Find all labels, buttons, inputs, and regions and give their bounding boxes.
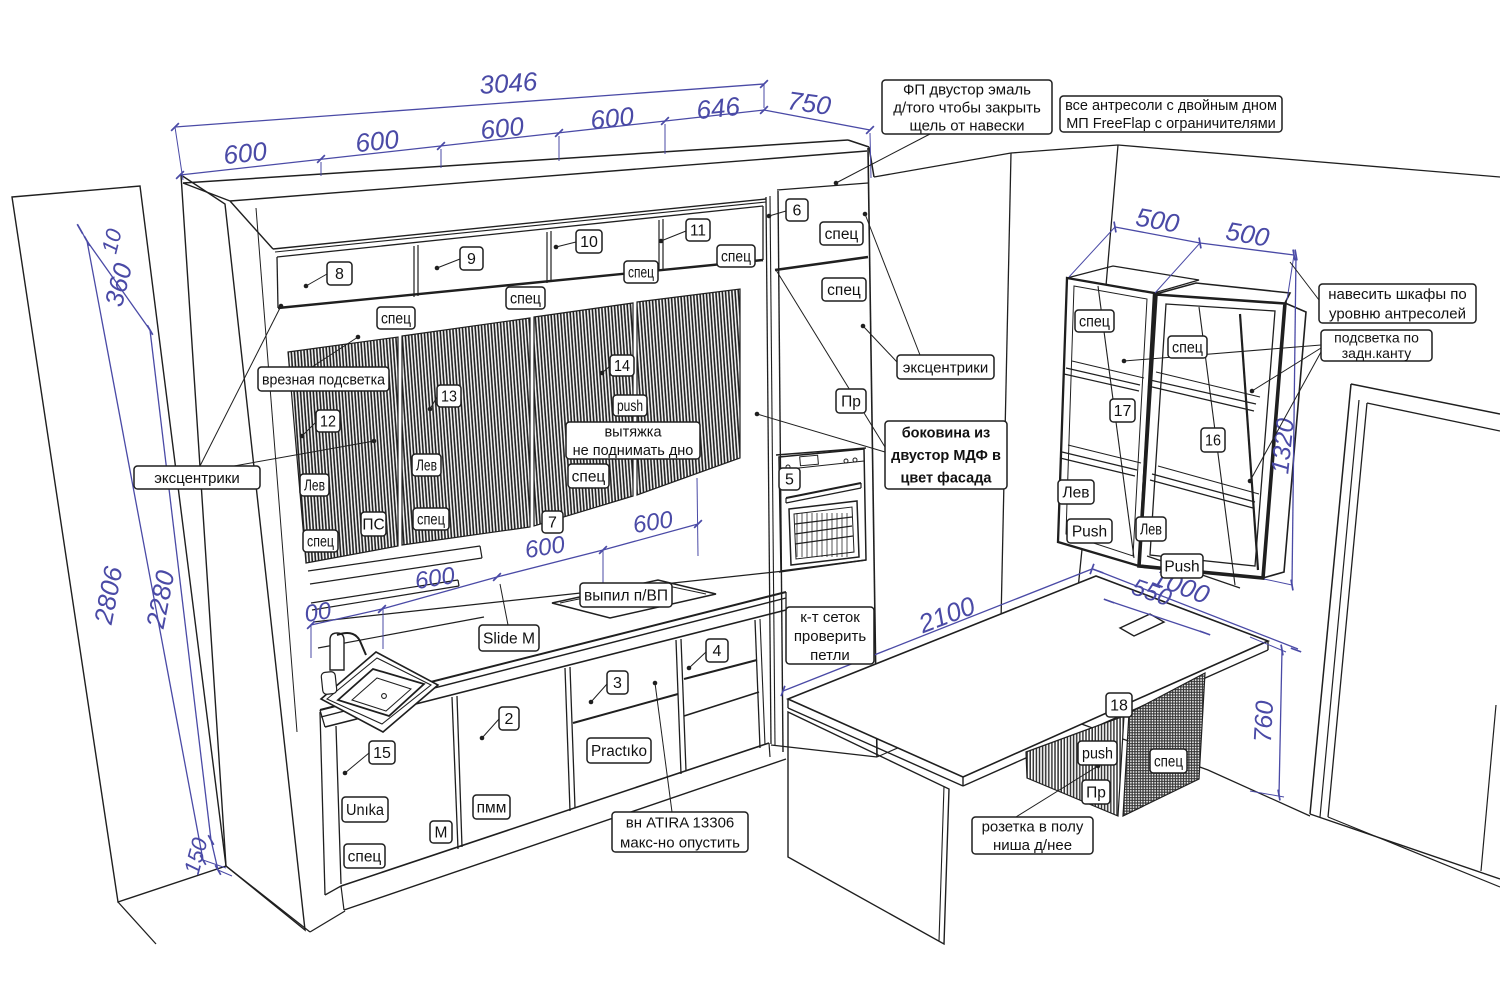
svg-text:Push: Push: [1164, 558, 1199, 575]
svg-text:боковина из: боковина из: [902, 425, 991, 441]
svg-text:навесить шкафы по: навесить шкафы по: [1328, 286, 1467, 303]
svg-text:15: 15: [373, 745, 391, 762]
svg-text:9: 9: [467, 251, 476, 268]
svg-text:3: 3: [613, 675, 622, 692]
svg-text:3046: 3046: [478, 66, 538, 100]
svg-text:646: 646: [695, 91, 742, 125]
svg-text:не поднимать дно: не поднимать дно: [573, 443, 694, 459]
svg-text:спец: спец: [381, 310, 411, 327]
svg-text:750: 750: [786, 85, 834, 121]
svg-text:760: 760: [1249, 700, 1279, 743]
svg-text:спец: спец: [628, 264, 654, 281]
svg-text:Лев: Лев: [416, 457, 437, 474]
svg-text:ниша д/нее: ниша д/нее: [993, 837, 1072, 854]
svg-text:11: 11: [690, 223, 706, 240]
svg-text:Push: Push: [1072, 523, 1107, 540]
svg-text:00: 00: [303, 597, 334, 628]
svg-text:спец: спец: [417, 511, 445, 528]
svg-text:все антресоли с двойным дном: все антресоли с двойным дном: [1065, 98, 1277, 114]
svg-text:уровню антресолей: уровню антресолей: [1329, 306, 1466, 323]
svg-text:пмм: пмм: [477, 799, 507, 816]
svg-text:эксцентрики: эксцентрики: [903, 359, 988, 376]
svg-text:5: 5: [785, 472, 794, 489]
svg-text:подсветка по: подсветка по: [1334, 330, 1419, 346]
svg-text:петли: петли: [810, 647, 850, 664]
svg-text:розетка в полу: розетка в полу: [982, 819, 1084, 836]
svg-text:Пр: Пр: [841, 393, 861, 410]
svg-text:push: push: [617, 398, 643, 415]
svg-text:600: 600: [589, 101, 636, 135]
svg-text:8: 8: [335, 266, 344, 283]
svg-text:Unıka: Unıka: [346, 802, 384, 819]
svg-text:4: 4: [713, 643, 722, 660]
svg-text:к-т сеток: к-т сеток: [800, 609, 860, 626]
svg-text:7: 7: [548, 515, 557, 532]
svg-text:12: 12: [320, 414, 336, 431]
svg-text:10: 10: [580, 234, 598, 251]
svg-text:6: 6: [793, 203, 802, 220]
svg-text:ПС: ПС: [362, 516, 384, 533]
svg-text:600: 600: [479, 111, 526, 145]
svg-text:600: 600: [354, 124, 401, 158]
svg-text:двустор МДФ в: двустор МДФ в: [891, 448, 1001, 464]
svg-text:спец: спец: [827, 282, 861, 299]
svg-text:спец: спец: [1154, 753, 1183, 770]
svg-text:вытяжка: вытяжка: [604, 424, 662, 440]
svg-text:задн.канту: задн.канту: [1342, 345, 1412, 361]
svg-text:18: 18: [1110, 698, 1128, 715]
svg-text:push: push: [1082, 745, 1113, 762]
svg-text:спец: спец: [1172, 339, 1203, 356]
svg-text:17: 17: [1114, 403, 1132, 420]
svg-text:спец: спец: [825, 226, 859, 243]
svg-text:спец: спец: [1079, 313, 1110, 330]
svg-text:спец: спец: [721, 248, 751, 265]
svg-text:спец: спец: [572, 468, 606, 485]
svg-text:16: 16: [1205, 433, 1221, 450]
svg-text:проверить: проверить: [794, 628, 867, 645]
svg-text:выпил п/ВП: выпил п/ВП: [584, 587, 668, 604]
svg-text:13: 13: [441, 389, 457, 406]
svg-text:щель от навески: щель от навески: [909, 117, 1024, 134]
svg-text:спец: спец: [510, 290, 541, 307]
svg-text:спец: спец: [307, 533, 334, 550]
svg-text:эксцентрики: эксцентрики: [154, 470, 239, 487]
svg-text:М: М: [435, 824, 448, 841]
svg-text:макс-но опустить: макс-но опустить: [620, 834, 740, 851]
svg-text:Пр: Пр: [1086, 784, 1106, 801]
svg-text:врезная подсветка: врезная подсветка: [262, 371, 386, 388]
svg-text:Slide M: Slide M: [483, 630, 535, 647]
svg-text:Practıko: Practıko: [591, 743, 647, 760]
svg-text:2: 2: [505, 711, 514, 728]
svg-text:цвет фасада: цвет фасада: [901, 471, 993, 487]
svg-text:спец: спец: [348, 848, 382, 865]
svg-text:Лев: Лев: [1140, 521, 1162, 538]
svg-text:МП FreeFlap с ограничителями: МП FreeFlap с ограничителями: [1066, 116, 1276, 132]
svg-text:1320: 1320: [1266, 417, 1300, 475]
svg-text:ФП двустор эмаль: ФП двустор эмаль: [903, 81, 1031, 98]
svg-text:14: 14: [614, 358, 630, 375]
svg-text:д/того чтобы закрыть: д/того чтобы закрыть: [893, 99, 1041, 116]
svg-text:вн ATIRA 13306: вн ATIRA 13306: [626, 814, 735, 831]
svg-text:600: 600: [222, 136, 269, 170]
svg-text:Лев: Лев: [304, 477, 325, 494]
svg-text:Лев: Лев: [1062, 484, 1089, 501]
